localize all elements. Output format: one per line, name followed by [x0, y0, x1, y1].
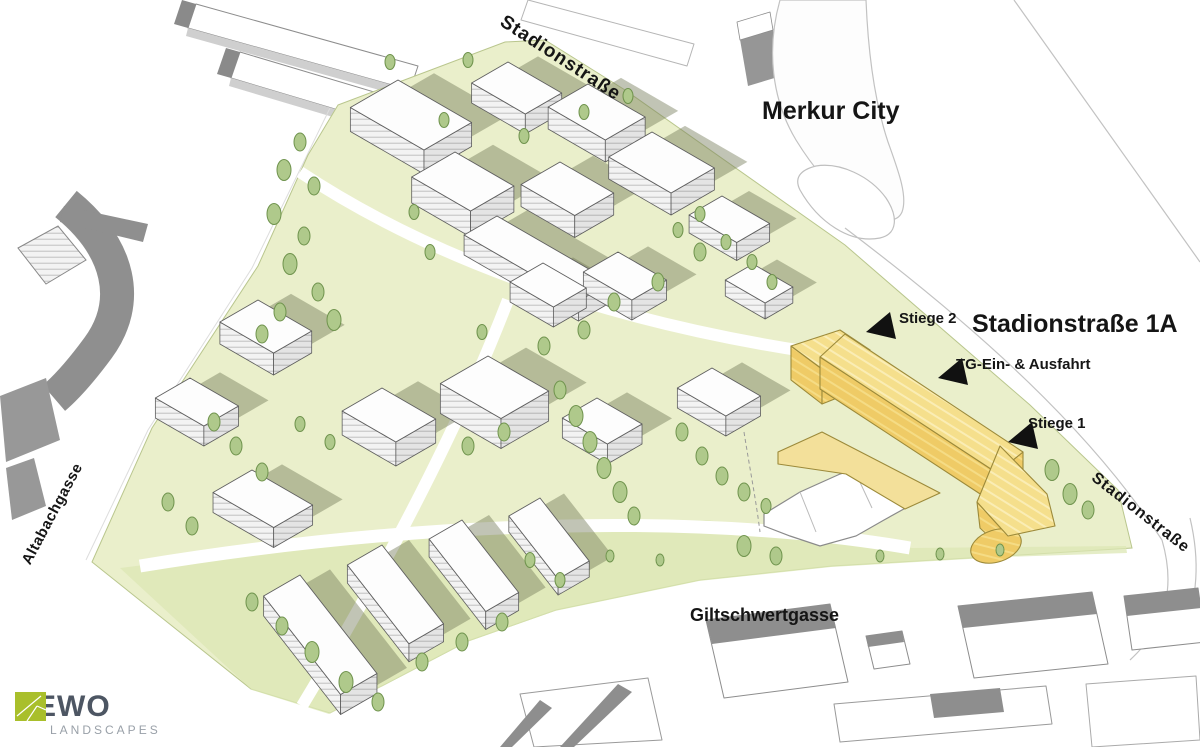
- site-plan: Stadionstraße Merkur City Stiege 2 Stadi…: [0, 0, 1200, 747]
- yewo-logo: YEWO LANDSCAPES: [15, 692, 161, 737]
- annotation-label-stiege-2: Stiege 2: [899, 311, 957, 326]
- annotation-label-tg-einfahrt: TG-Ein- & Ausfahrt: [956, 357, 1090, 372]
- logo-subtitle-text: LANDSCAPES: [50, 723, 161, 737]
- project-title: Stadionstraße 1A: [972, 312, 1178, 337]
- street-label-giltschwertgasse: Giltschwertgasse: [690, 606, 839, 624]
- annotation-label-stiege-1: Stiege 1: [1028, 416, 1086, 431]
- context-buildings-south: [500, 588, 1200, 747]
- area-label-merkur-city: Merkur City: [762, 99, 900, 124]
- site-plan-canvas: [0, 0, 1200, 747]
